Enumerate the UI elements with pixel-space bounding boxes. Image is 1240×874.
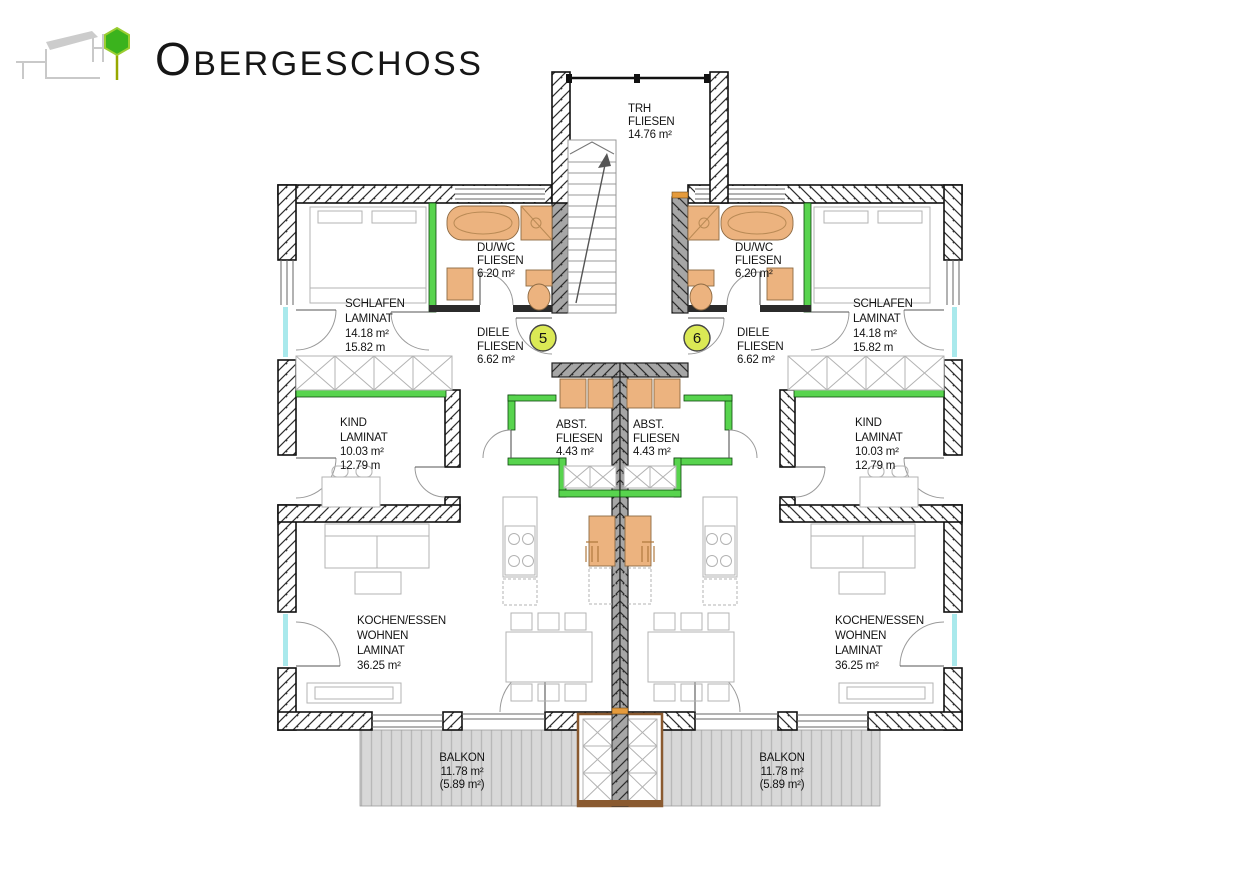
svg-text:14.18 m²: 14.18 m² [345,328,389,340]
svg-text:12.79 m: 12.79 m [340,460,380,472]
room-label-wohnen-6: KOCHEN/ESSEN WOHNEN LAMINAT 36.25 m² [835,615,924,672]
svg-text:KIND: KIND [855,417,882,429]
svg-text:12.79 m: 12.79 m [855,460,895,472]
svg-text:11.78 m²: 11.78 m² [761,766,804,778]
balcony-divider [578,708,662,806]
svg-text:FLIESEN: FLIESEN [633,433,680,445]
staircase [568,140,616,313]
room-label-abst-5: ABST. FLIESEN 4.43 m² [556,419,603,458]
svg-text:LAMINAT: LAMINAT [855,432,903,444]
floorplan-page: OBERGESCHOSS [0,0,1240,874]
room-label-diele-6: DIELE FLIESEN 6.62 m² [737,327,784,366]
svg-text:KOCHEN/ESSEN: KOCHEN/ESSEN [357,615,446,627]
svg-text:6.62 m²: 6.62 m² [737,354,775,366]
svg-text:DU/WC: DU/WC [477,242,515,254]
svg-text:DIELE: DIELE [477,327,510,339]
label-line: FLIESEN [628,116,675,128]
svg-text:6.62 m²: 6.62 m² [477,354,515,366]
room-label-schlafen-6: SCHLAFEN LAMINAT 14.18 m² 15.82 m [853,298,913,354]
unit-badge-5: 5 [530,325,556,351]
svg-text:6.20 m²: 6.20 m² [735,268,773,280]
svg-text:36.25 m²: 36.25 m² [835,660,879,672]
svg-text:15.82 m: 15.82 m [345,342,385,354]
room-label-diele-5: DIELE FLIESEN 6.62 m² [477,327,524,366]
svg-text:SCHLAFEN: SCHLAFEN [345,298,405,310]
svg-text:4.43 m²: 4.43 m² [556,446,594,458]
svg-text:5: 5 [539,330,547,347]
svg-text:SCHLAFEN: SCHLAFEN [853,298,913,310]
svg-text:WOHNEN: WOHNEN [835,630,886,642]
svg-text:KOCHEN/ESSEN: KOCHEN/ESSEN [835,615,924,627]
svg-text:(5.89 m²): (5.89 m²) [440,779,485,791]
svg-text:10.03 m²: 10.03 m² [340,446,384,458]
svg-text:6.20 m²: 6.20 m² [477,268,515,280]
room-label-balkon-6: BALKON 11.78 m² (5.89 m²) [759,752,805,791]
unit-badge-6: 6 [684,325,710,351]
svg-text:FLIESEN: FLIESEN [477,341,524,353]
room-label-abst-6: ABST. FLIESEN 4.43 m² [633,419,680,458]
svg-text:FLIESEN: FLIESEN [477,255,524,267]
room-label-schlafen-5: SCHLAFEN LAMINAT 14.18 m² 15.82 m [345,298,405,354]
svg-text:10.03 m²: 10.03 m² [855,446,899,458]
svg-text:6: 6 [693,330,701,347]
svg-text:11.78 m²: 11.78 m² [441,766,484,778]
svg-text:WOHNEN: WOHNEN [357,630,408,642]
svg-text:36.25 m²: 36.25 m² [357,660,401,672]
svg-text:LAMINAT: LAMINAT [853,313,901,325]
svg-text:14.18 m²: 14.18 m² [853,328,897,340]
room-label-trh: TRH FLIESEN 14.76 m² [628,103,675,141]
label-line: 14.76 m² [628,129,672,141]
room-label-wohnen-5: KOCHEN/ESSEN WOHNEN LAMINAT 36.25 m² [357,615,446,672]
svg-text:LAMINAT: LAMINAT [835,645,883,657]
floorplan-drawing: TRH FLIESEN 14.76 m² DU/WC FLIESEN 6.20 … [0,0,1240,874]
room-label-kind-6: KIND LAMINAT 10.03 m² 12.79 m [855,417,903,472]
svg-text:LAMINAT: LAMINAT [345,313,393,325]
svg-text:BALKON: BALKON [439,752,484,764]
room-label-balkon-5: BALKON 11.78 m² (5.89 m²) [439,752,485,791]
label-line: TRH [628,103,651,115]
svg-text:DU/WC: DU/WC [735,242,773,254]
svg-text:BALKON: BALKON [759,752,804,764]
room-label-kind-5: KIND LAMINAT 10.03 m² 12.79 m [340,417,388,472]
svg-text:LAMINAT: LAMINAT [357,645,405,657]
svg-text:DIELE: DIELE [737,327,770,339]
svg-text:4.43 m²: 4.43 m² [633,446,671,458]
room-label-duwc-5: DU/WC FLIESEN 6.20 m² [477,242,524,280]
svg-text:ABST.: ABST. [556,419,587,431]
svg-text:FLIESEN: FLIESEN [556,433,603,445]
apartment-6-geometry [620,185,962,730]
svg-text:(5.89 m²): (5.89 m²) [760,779,805,791]
svg-text:15.82 m: 15.82 m [853,342,893,354]
svg-text:KIND: KIND [340,417,367,429]
svg-text:FLIESEN: FLIESEN [735,255,782,267]
svg-text:FLIESEN: FLIESEN [737,341,784,353]
svg-text:LAMINAT: LAMINAT [340,432,388,444]
svg-text:ABST.: ABST. [633,419,664,431]
